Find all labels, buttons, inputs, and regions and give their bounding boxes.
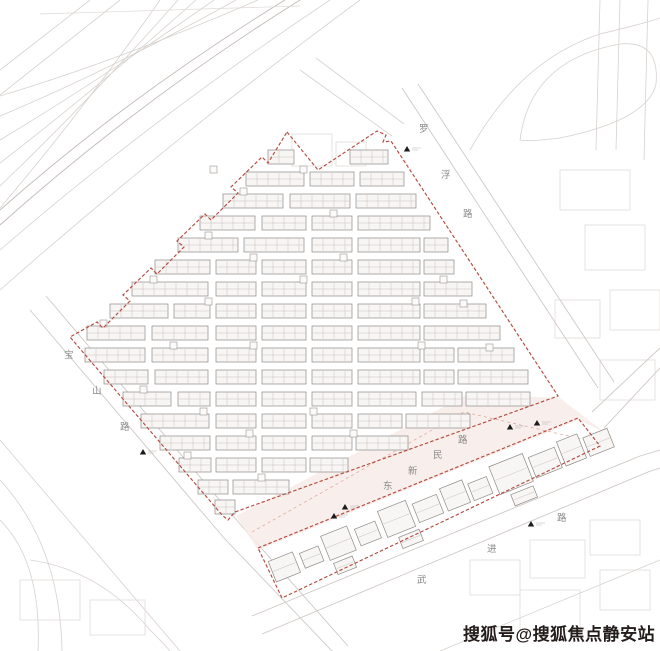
outbuilding [330,210,337,217]
outbuilding [460,300,467,307]
outbuilding [240,188,247,195]
road-label-wujin-road: 路 [557,512,567,524]
outbuilding [150,276,157,283]
site-plan-map: 宝山路罗浮路东新民路武进路 [0,0,660,651]
road-label-luofu-road: 路 [463,208,473,220]
outbuilding [258,474,265,481]
outbuilding [140,386,147,393]
outbuilding [250,342,257,349]
outbuilding [246,430,253,437]
watermark-text: 搜狐号@搜狐焦点静安站 [463,620,655,645]
road-label-baoshan-road: 山 [92,386,102,397]
outbuilding [440,276,447,283]
outbuilding [300,276,307,283]
road-label-dongxinmin-road: 东 [383,480,393,492]
outbuilding [210,166,217,173]
entrance-marker-icon [404,146,410,152]
outbuilding [170,342,177,349]
outbuilding [205,298,212,305]
road-label-dongxinmin-road: 新 [408,465,418,477]
road-label-wujin-road: 进 [487,544,497,555]
outbuilding [486,344,493,351]
road-label-baoshan-road: 路 [120,421,130,433]
road-label-luofu-road: 罗 [419,124,429,135]
road-label-dongxinmin-road: 民 [433,450,443,461]
outbuilding [300,166,307,173]
outbuilding [340,254,347,261]
outbuilding [184,452,191,459]
outbuilding [205,232,212,239]
outbuilding [412,298,419,305]
road-label-dongxinmin-road: 路 [458,434,468,446]
road-label-wujin-road: 武 [417,574,427,586]
outbuilding [350,430,357,437]
entrance-marker-icon [140,449,146,455]
outbuilding [310,408,317,415]
outbuilding [200,408,207,415]
outbuilding [250,254,257,261]
road-label-baoshan-road: 宝 [64,349,74,361]
road-label-luofu-road: 浮 [441,169,451,181]
outbuilding [418,342,425,349]
site-plan-page: 宝山路罗浮路东新民路武进路 搜狐号@搜狐焦点静安站 [0,0,660,651]
